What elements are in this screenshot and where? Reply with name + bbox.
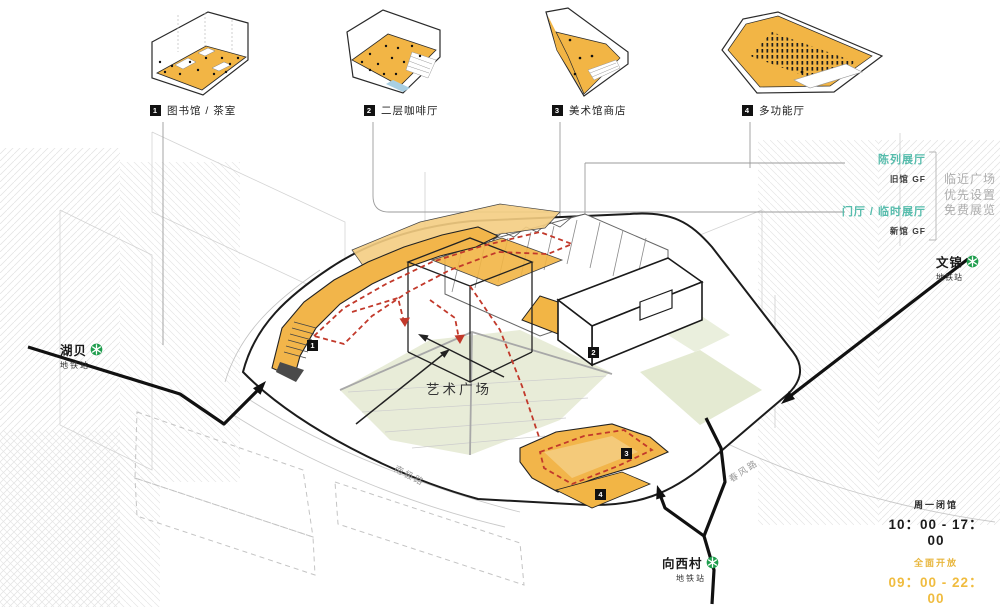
axon-marker-3: 3 <box>621 448 632 459</box>
diagram-canvas: 1 图书馆 / 茶室 2 二层咖啡厅 3 美术馆商店 4 多功能厅 陈列展厅 旧… <box>0 0 1000 607</box>
callout-label-2: 2 二层咖啡厅 <box>364 103 439 118</box>
foyer-temp-label: 门厅 / 临时展厅 <box>796 203 926 219</box>
callout-text: 美术馆商店 <box>569 103 627 118</box>
callout-text: 多功能厅 <box>759 103 805 118</box>
axon-marker-4: 4 <box>595 489 606 500</box>
note-line: 临近广场 <box>944 172 996 188</box>
callout-number-badge: 3 <box>552 105 563 116</box>
callout-number-badge: 1 <box>150 105 161 116</box>
station-wenjin: 文锦 地铁站 <box>936 252 979 283</box>
station-name: 向西村 <box>662 553 703 572</box>
station-xiangxicun: 向西村 地铁站 <box>662 553 719 584</box>
art-plaza-label: 艺术广场 <box>426 378 492 398</box>
station-sub: 地铁站 <box>936 272 979 283</box>
opening-hours-legend: 周一闭馆 10：00 - 17：00 全面开放 09：00 - 22：00 <box>880 498 992 607</box>
metro-icon <box>706 556 719 569</box>
station-name: 湖贝 <box>60 340 87 359</box>
callout-label-1: 1 图书馆 / 茶室 <box>150 103 236 118</box>
plaza-open-note: 全面开放 <box>880 556 992 569</box>
note-line: 免费展览 <box>944 203 996 219</box>
callout-number-badge: 2 <box>364 105 375 116</box>
station-hubei: 湖贝 地铁站 <box>60 340 103 371</box>
figure <box>801 71 804 74</box>
callout-4-axon <box>722 12 882 93</box>
callout-label-3: 3 美术馆商店 <box>552 103 627 118</box>
callout-text: 二层咖啡厅 <box>381 103 439 118</box>
museum-hours: 10：00 - 17：00 <box>880 513 992 548</box>
exhibit-hall-label: 陈列展厅 <box>826 151 926 167</box>
station-sub: 地铁站 <box>676 573 719 584</box>
callout-label-4: 4 多功能厅 <box>742 103 805 118</box>
callout-3-axon <box>546 8 628 96</box>
station-name: 文锦 <box>936 252 963 271</box>
metro-icon <box>90 343 103 356</box>
station-sub: 地铁站 <box>60 360 103 371</box>
axon-marker-1: 1 <box>307 340 318 351</box>
annotation-notes: 临近广场 优先设置 免费展览 <box>944 172 996 219</box>
axon-marker-2: 2 <box>588 347 599 358</box>
callout-2-axon <box>347 10 440 93</box>
callout-number-badge: 4 <box>742 105 753 116</box>
note-line: 优先设置 <box>944 188 996 204</box>
new-gf-label: 新馆 GF <box>826 225 926 237</box>
axonometric-diagram <box>0 0 1000 607</box>
metro-icon <box>966 255 979 268</box>
old-gf-label: 旧馆 GF <box>826 173 926 185</box>
callout-1-axon <box>152 12 248 95</box>
museum-closed-note: 周一闭馆 <box>880 498 992 511</box>
plaza-hours: 09：00 - 22：00 <box>880 571 992 606</box>
callout-text: 图书馆 / 茶室 <box>167 103 236 118</box>
